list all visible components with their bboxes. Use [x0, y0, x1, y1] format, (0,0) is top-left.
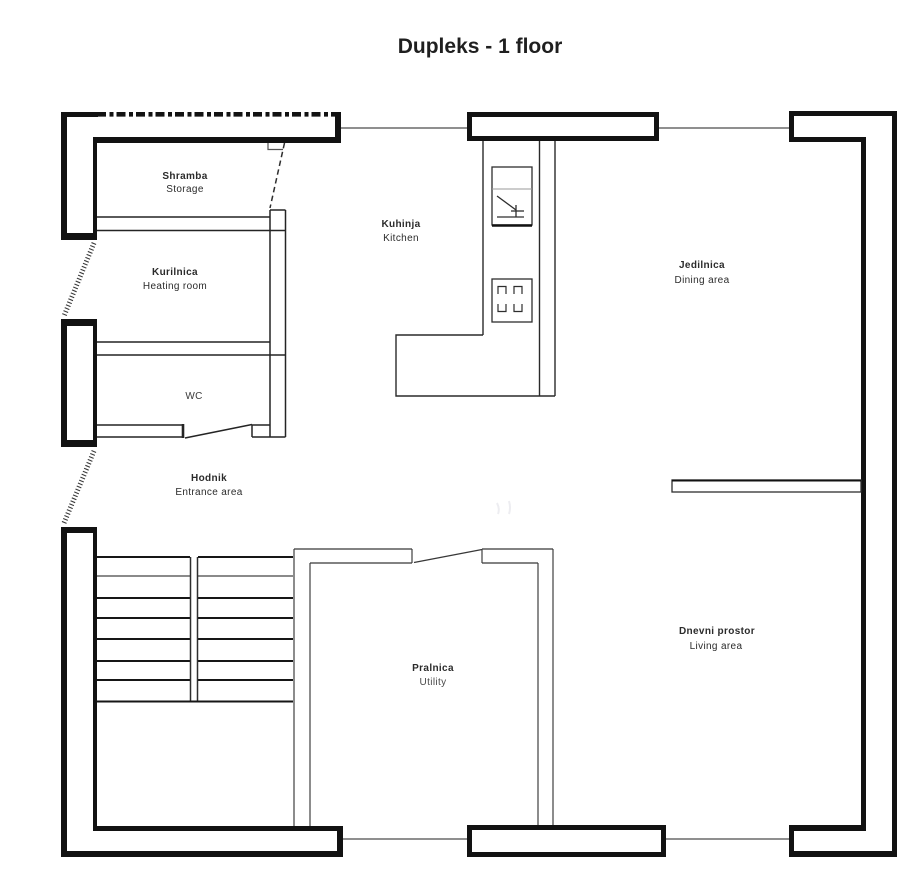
svg-text:Hodnik: Hodnik: [191, 473, 227, 484]
svg-text:Living area: Living area: [690, 641, 743, 652]
svg-text:Kuhinja: Kuhinja: [381, 219, 420, 230]
svg-text:Kitchen: Kitchen: [383, 233, 419, 244]
svg-text:Jedilnica: Jedilnica: [679, 260, 725, 271]
svg-text:Pralnica: Pralnica: [412, 663, 454, 674]
svg-text:Dnevni prostor: Dnevni prostor: [679, 626, 755, 637]
svg-text:Kurilnica: Kurilnica: [152, 267, 198, 278]
svg-text:Entrance area: Entrance area: [175, 487, 242, 498]
svg-text:Dining area: Dining area: [675, 275, 730, 286]
svg-text:WC: WC: [185, 391, 202, 402]
svg-text:Dupleks - 1 floor: Dupleks - 1 floor: [398, 35, 563, 58]
svg-text:Utility: Utility: [420, 677, 447, 688]
svg-text:Storage: Storage: [166, 184, 204, 195]
svg-text:Shramba: Shramba: [162, 171, 207, 182]
svg-text:Heating room: Heating room: [143, 281, 207, 292]
